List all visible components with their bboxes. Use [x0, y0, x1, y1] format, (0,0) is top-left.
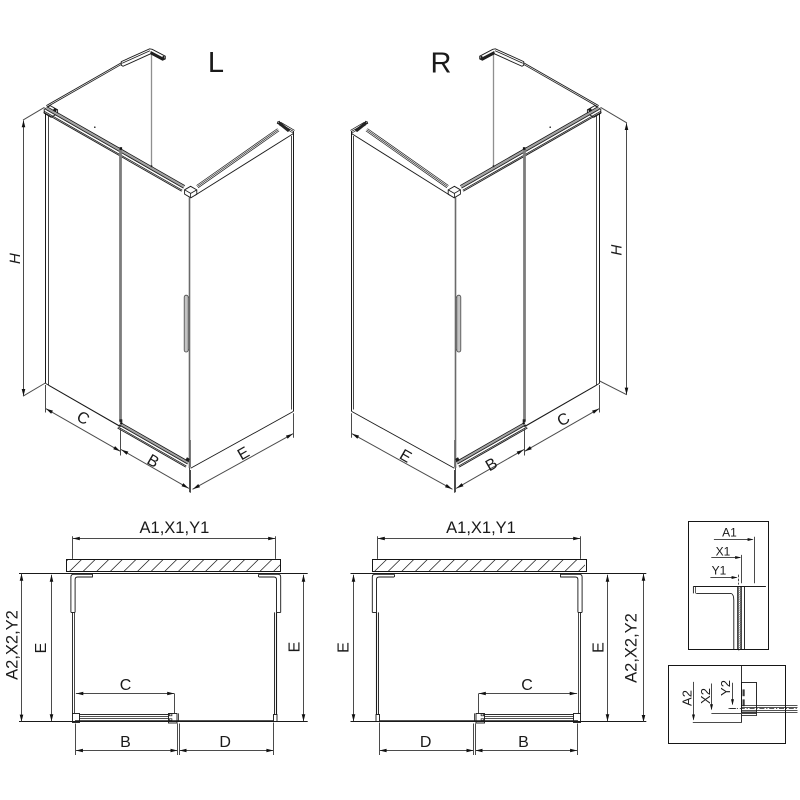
svg-text:Y1: Y1 — [712, 564, 727, 578]
svg-text:D: D — [420, 734, 432, 751]
svg-text:C: C — [521, 677, 533, 694]
svg-text:A1: A1 — [722, 526, 737, 540]
svg-text:X2: X2 — [698, 688, 713, 704]
svg-text:B: B — [518, 734, 529, 751]
svg-text:B: B — [120, 734, 131, 751]
svg-text:A1,X1,Y1: A1,X1,Y1 — [140, 519, 210, 537]
svg-text:R: R — [431, 48, 452, 80]
svg-text:A2,X2,Y2: A2,X2,Y2 — [623, 613, 641, 683]
svg-text:Y2: Y2 — [718, 680, 733, 696]
svg-text:E: E — [591, 642, 608, 653]
svg-text:C: C — [120, 677, 132, 694]
svg-text:E: E — [336, 642, 353, 653]
svg-text:E: E — [33, 643, 50, 654]
svg-text:A2: A2 — [680, 690, 695, 706]
svg-text:L: L — [208, 47, 224, 79]
svg-text:A1,X1,Y1: A1,X1,Y1 — [446, 519, 516, 537]
svg-text:X1: X1 — [716, 545, 731, 559]
svg-text:D: D — [219, 734, 231, 751]
svg-text:E: E — [287, 642, 304, 653]
svg-text:A2,X2,Y2: A2,X2,Y2 — [4, 610, 22, 680]
